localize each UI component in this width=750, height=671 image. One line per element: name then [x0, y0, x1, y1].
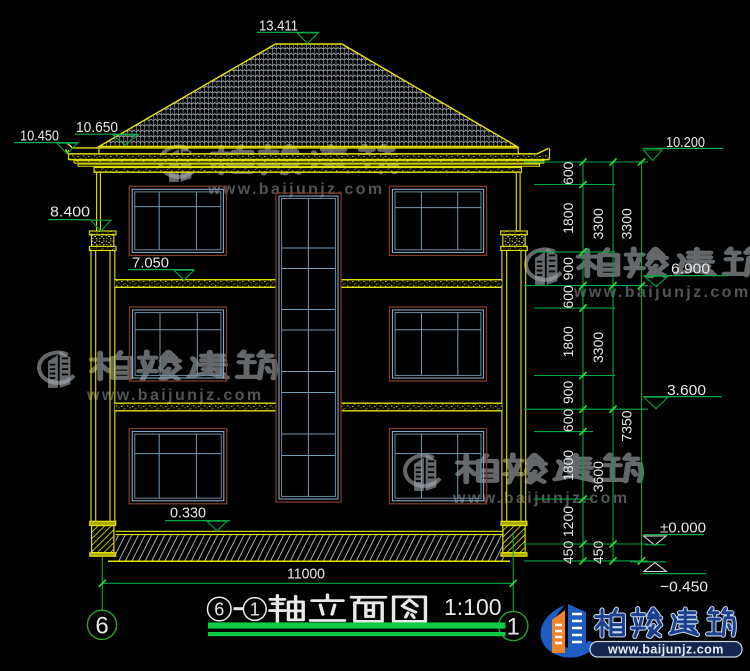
svg-text:6.900: 6.900: [671, 260, 710, 277]
svg-text:1: 1: [507, 614, 520, 641]
svg-text:600: 600: [560, 161, 576, 185]
svg-text:www.baijunjz.com: www.baijunjz.com: [86, 387, 264, 404]
svg-text:0.330: 0.330: [170, 505, 206, 522]
svg-text:3300: 3300: [590, 208, 606, 239]
svg-text:3600: 3600: [590, 461, 606, 492]
svg-text:www.baijunjz.com: www.baijunjz.com: [607, 643, 724, 657]
svg-text:1800: 1800: [560, 202, 576, 233]
svg-text:10.650: 10.650: [76, 119, 118, 136]
svg-text:www.baijunjz.com: www.baijunjz.com: [573, 284, 750, 301]
svg-text:3300: 3300: [590, 332, 606, 363]
svg-text:900: 900: [560, 257, 576, 281]
svg-text:1800: 1800: [560, 326, 576, 357]
svg-text:450: 450: [590, 541, 606, 565]
svg-text:−0.450: −0.450: [660, 579, 708, 596]
svg-text:450: 450: [560, 541, 576, 565]
svg-text:±0.000: ±0.000: [660, 519, 706, 536]
svg-text:6: 6: [214, 600, 224, 620]
svg-text:600: 600: [560, 285, 576, 309]
svg-text:7350: 7350: [619, 410, 635, 441]
svg-text:6: 6: [95, 612, 108, 639]
svg-text:1200: 1200: [560, 506, 576, 537]
svg-text:600: 600: [560, 409, 576, 433]
svg-text:1800: 1800: [560, 450, 576, 481]
svg-text:13.411: 13.411: [259, 17, 298, 34]
svg-text:11000: 11000: [287, 566, 325, 583]
svg-text:1: 1: [250, 600, 260, 620]
svg-text:8.400: 8.400: [50, 204, 90, 221]
svg-text:3300: 3300: [619, 208, 635, 239]
svg-text:900: 900: [560, 380, 576, 404]
svg-text:1:100: 1:100: [444, 594, 502, 620]
svg-text:10.450: 10.450: [20, 128, 59, 145]
